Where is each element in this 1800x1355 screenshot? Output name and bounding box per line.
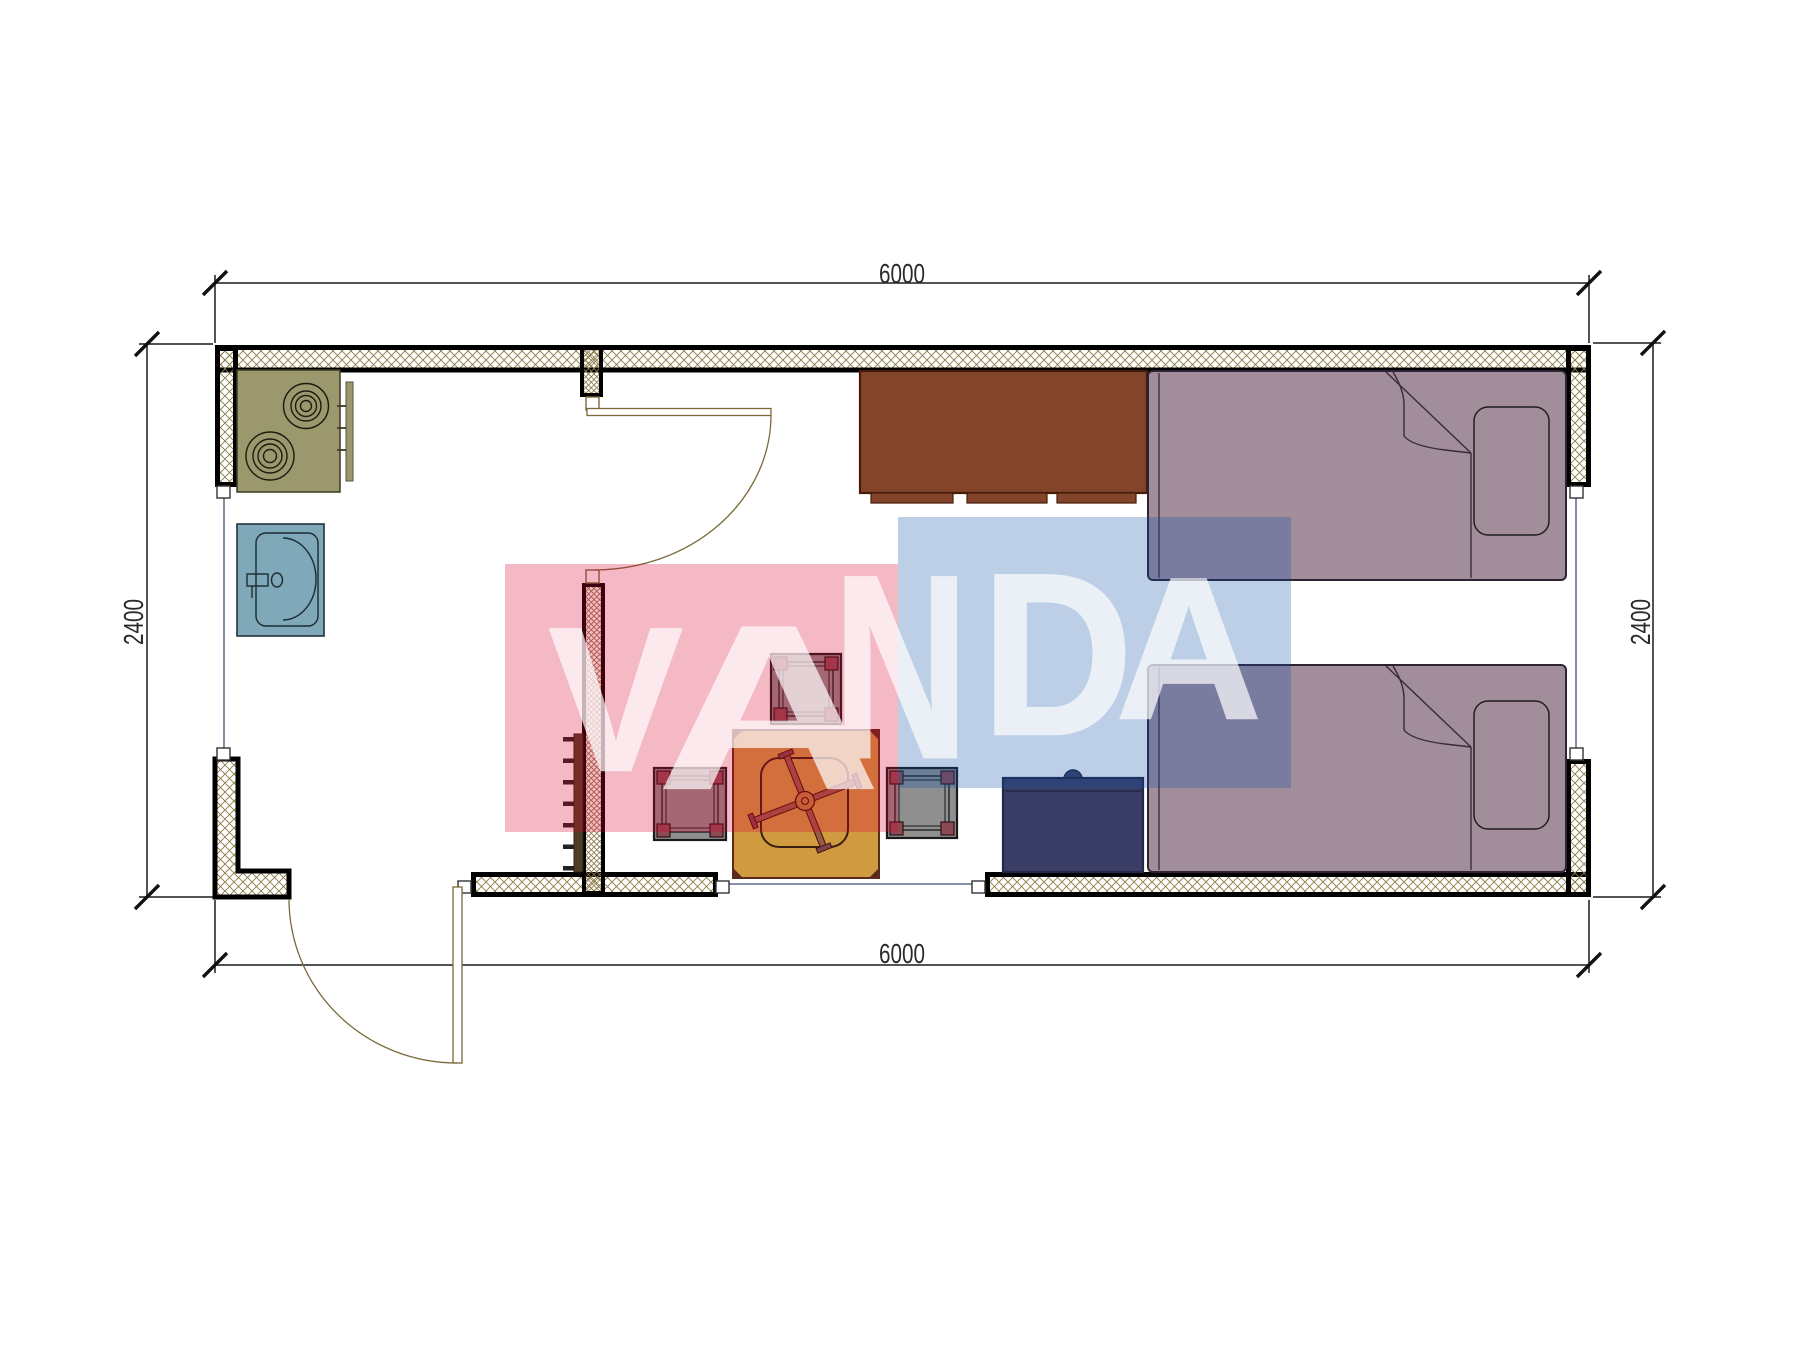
svg-text:N: N <box>833 522 969 813</box>
svg-text:2400: 2400 <box>118 599 149 645</box>
svg-text:D: D <box>981 526 1132 783</box>
svg-text:6000: 6000 <box>879 258 925 289</box>
svg-text:2400: 2400 <box>1625 599 1656 645</box>
svg-text:6000: 6000 <box>879 938 925 969</box>
svg-text:A: A <box>1116 536 1261 761</box>
